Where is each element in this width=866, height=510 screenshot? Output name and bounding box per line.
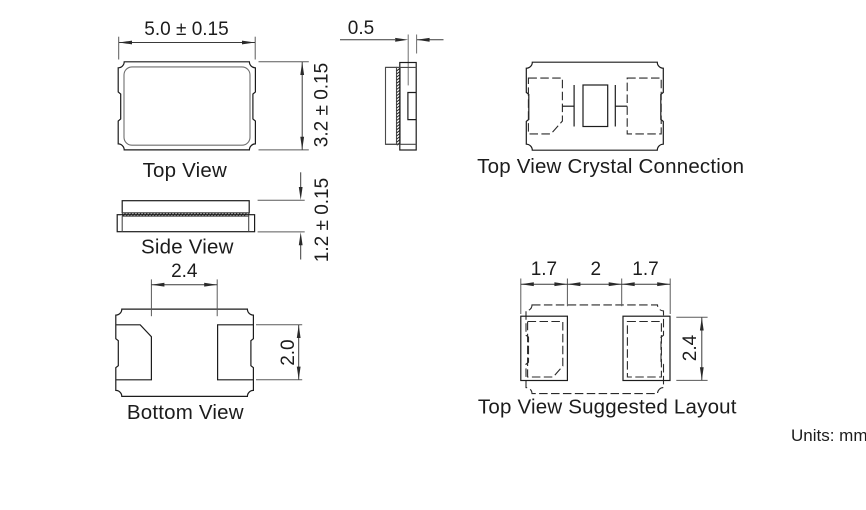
- svg-text:Top View: Top View: [143, 159, 227, 182]
- svg-text:2: 2: [591, 259, 602, 280]
- svg-text:1.2 ± 0.15: 1.2 ± 0.15: [312, 178, 333, 262]
- svg-text:3.2 ± 0.15: 3.2 ± 0.15: [312, 63, 333, 147]
- svg-text:1.7: 1.7: [632, 259, 658, 280]
- svg-text:5.0 ± 0.15: 5.0 ± 0.15: [144, 19, 228, 40]
- svg-text:0.5: 0.5: [348, 18, 374, 39]
- svg-text:Side View: Side View: [141, 236, 234, 259]
- svg-text:2.4: 2.4: [171, 261, 198, 282]
- svg-text:2.0: 2.0: [278, 339, 299, 365]
- svg-text:Top View Suggested Layout: Top View Suggested Layout: [478, 395, 737, 418]
- svg-text:Units: mm: Units: mm: [791, 426, 866, 445]
- svg-text:Bottom View: Bottom View: [127, 401, 244, 424]
- svg-text:Top View Crystal Connection: Top View Crystal Connection: [477, 155, 744, 178]
- svg-text:1.7: 1.7: [531, 259, 557, 280]
- svg-text:2.4: 2.4: [680, 334, 701, 361]
